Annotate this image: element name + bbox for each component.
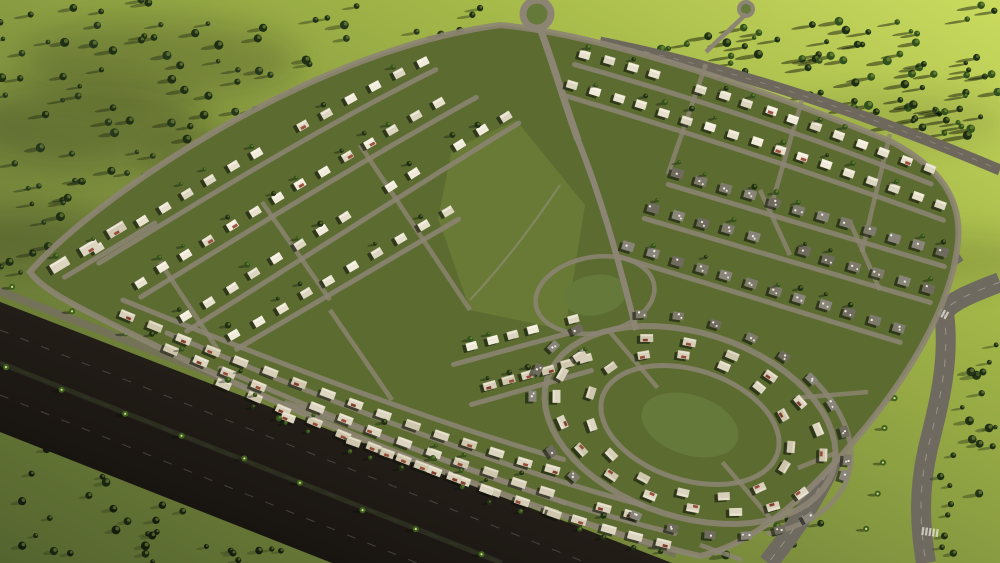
tree-highlight — [981, 391, 984, 394]
tree-highlight — [420, 215, 422, 217]
tree-highlight — [970, 126, 974, 130]
tree-highlight — [180, 62, 184, 66]
tree-highlight — [233, 550, 236, 553]
tree-highlight — [743, 25, 746, 28]
tree-highlight — [162, 502, 165, 505]
tree-highlight — [384, 419, 387, 422]
tree-highlight — [488, 332, 490, 334]
tree-highlight — [943, 240, 945, 242]
tree-highlight — [247, 262, 250, 265]
tree-highlight — [962, 406, 964, 408]
tree-highlight — [257, 35, 261, 39]
tree-highlight — [22, 498, 26, 502]
tree-highlight — [432, 456, 435, 459]
tree-highlight — [947, 513, 949, 515]
tree-highlight — [527, 365, 530, 368]
tree-highlight — [144, 34, 147, 37]
tree-highlight — [237, 79, 240, 82]
tree-highlight — [101, 9, 104, 12]
tree-highlight — [183, 244, 185, 246]
tree-highlight — [959, 106, 962, 109]
tree-highlight — [238, 558, 241, 561]
tree-highlight — [966, 73, 969, 76]
tree-highlight — [182, 509, 185, 512]
tree-highlight — [152, 154, 155, 157]
tree-highlight — [953, 550, 956, 553]
house — [816, 448, 828, 463]
palm-crown — [299, 482, 301, 484]
tree-highlight — [897, 20, 899, 22]
tree-highlight — [409, 162, 411, 164]
tree-highlight — [184, 87, 188, 91]
tree-highlight — [346, 36, 349, 39]
tree-highlight — [995, 425, 997, 427]
tree-highlight — [97, 23, 100, 26]
tree-highlight — [115, 527, 119, 531]
roof-ridge — [641, 335, 652, 337]
tree-highlight — [900, 98, 903, 101]
palm-crown — [877, 493, 879, 495]
tree-highlight — [105, 479, 109, 483]
tree-highlight — [758, 30, 761, 33]
tree-highlight — [255, 393, 257, 395]
tree-highlight — [489, 500, 491, 502]
tree-highlight — [180, 183, 182, 185]
tree-highlight — [979, 490, 983, 494]
ac-unit — [644, 314, 646, 316]
tree-highlight — [179, 308, 181, 310]
tree-highlight — [227, 215, 229, 217]
tree-highlight — [633, 58, 635, 60]
tree-highlight — [976, 55, 979, 58]
tree-highlight — [141, 37, 144, 40]
tree-highlight — [967, 17, 969, 19]
tree-highlight — [145, 551, 148, 554]
palm-crown — [71, 310, 73, 312]
tree-highlight — [776, 190, 779, 193]
tree-highlight — [277, 297, 279, 299]
tree-highlight — [868, 102, 872, 106]
tree-highlight — [156, 530, 159, 533]
ac-unit — [638, 311, 640, 313]
tree-highlight — [922, 234, 924, 236]
tree-highlight — [127, 518, 131, 522]
tree-highlight — [151, 332, 154, 335]
palm-crown — [865, 528, 867, 530]
tree-highlight — [171, 76, 175, 80]
tree-highlight — [203, 112, 207, 116]
tree-highlight — [112, 47, 116, 51]
tree-highlight — [812, 22, 815, 25]
tree-highlight — [731, 53, 734, 56]
tree-highlight — [800, 286, 803, 289]
tree-highlight — [726, 87, 728, 89]
house-roof — [704, 530, 716, 539]
tree-highlight — [364, 131, 366, 133]
tree-highlight — [53, 548, 57, 552]
tree-highlight — [181, 347, 183, 349]
tree-highlight — [991, 71, 995, 75]
tree-highlight — [988, 425, 992, 429]
tree-highlight — [509, 370, 511, 372]
tree-highlight — [827, 154, 829, 156]
tree-highlight — [67, 195, 71, 199]
tree-highlight — [818, 52, 821, 55]
tree-highlight — [477, 123, 480, 126]
tree-highlight — [3, 37, 5, 39]
tree-highlight — [296, 176, 298, 178]
tree-highlight — [992, 444, 995, 447]
tree-highlight — [160, 23, 162, 25]
palm-crown — [5, 366, 7, 368]
house-roof — [843, 454, 852, 466]
tree-highlight — [961, 124, 964, 127]
tree-highlight — [845, 27, 849, 31]
tree-highlight — [968, 68, 970, 70]
tree-highlight — [754, 36, 756, 38]
tree-highlight — [190, 124, 193, 127]
tree-highlight — [20, 76, 23, 79]
tree-highlight — [73, 5, 77, 9]
house-roof — [636, 310, 647, 318]
tree-highlight — [145, 542, 149, 546]
tree-highlight — [101, 68, 103, 70]
palm-crown — [882, 461, 884, 463]
tree-highlight — [965, 90, 968, 93]
tree-highlight — [965, 94, 967, 96]
tree-highlight — [982, 369, 985, 372]
tree-highlight — [22, 543, 26, 547]
tree-highlight — [645, 94, 647, 96]
tree-highlight — [871, 74, 874, 77]
ac-unit — [533, 392, 535, 394]
tree-highlight — [93, 41, 97, 45]
tree-highlight — [472, 12, 475, 15]
tree-highlight — [48, 40, 50, 42]
tree-highlight — [218, 42, 222, 46]
terracotta-accent — [643, 339, 648, 342]
palm-crown — [61, 389, 63, 391]
tree-highlight — [153, 35, 156, 38]
tree-highlight — [300, 282, 302, 284]
tree-highlight — [64, 39, 68, 43]
tree-highlight — [876, 109, 879, 112]
ac-unit — [680, 317, 682, 319]
house — [783, 440, 795, 455]
tree-highlight — [603, 513, 606, 516]
tree-highlight — [783, 140, 786, 143]
tree-highlight — [664, 100, 667, 103]
tree-highlight — [166, 52, 170, 56]
tree-highlight — [159, 255, 161, 257]
palm-crown — [480, 553, 482, 555]
tree-highlight — [108, 119, 111, 122]
tree-highlight — [258, 68, 262, 72]
tree-highlight — [370, 456, 372, 458]
palm-crown — [415, 528, 417, 530]
tree-highlight — [435, 444, 437, 446]
tree-highlight — [935, 107, 937, 109]
tree-highlight — [273, 191, 275, 193]
ac-unit — [742, 534, 744, 536]
tree-highlight — [487, 377, 489, 379]
tree-highlight — [320, 221, 323, 224]
tree-highlight — [206, 545, 208, 547]
tree-highlight — [923, 62, 926, 65]
tree-highlight — [705, 255, 707, 257]
tree-highlight — [393, 65, 395, 67]
tree-highlight — [933, 71, 936, 74]
tree-highlight — [911, 30, 913, 32]
tree-highlight — [327, 16, 330, 19]
palm-crown — [883, 427, 885, 429]
ac-unit — [748, 534, 750, 536]
tree-highlight — [204, 168, 206, 170]
tree-highlight — [80, 179, 83, 182]
tree-highlight — [958, 121, 960, 123]
tree-highlight — [228, 323, 231, 326]
tree-highlight — [704, 173, 706, 175]
tree-highlight — [862, 42, 865, 45]
tree-highlight — [62, 74, 65, 77]
tree-highlight — [633, 546, 636, 549]
palm-crown — [243, 457, 245, 459]
tree-highlight — [208, 22, 210, 24]
tree-highlight — [49, 516, 52, 519]
ac-unit — [845, 461, 847, 463]
tree-highlight — [71, 151, 74, 154]
tree-highlight — [807, 65, 810, 68]
tree-highlight — [280, 549, 283, 552]
tree-highlight — [585, 347, 587, 349]
tree-highlight — [305, 57, 309, 61]
tree-highlight — [486, 479, 488, 481]
tree-highlight — [917, 31, 920, 34]
tree-highlight — [70, 551, 73, 554]
tree-highlight — [30, 12, 33, 15]
tree-highlight — [258, 548, 261, 551]
tree-highlight — [375, 242, 377, 244]
tree-highlight — [521, 471, 523, 473]
palm-crown — [361, 509, 363, 511]
tree-highlight — [60, 213, 64, 217]
tree-highlight — [661, 46, 665, 50]
tree-highlight — [949, 484, 951, 486]
tree-highlight — [251, 145, 253, 147]
tree-highlight — [915, 39, 919, 43]
tree-highlight — [237, 68, 240, 71]
tree-highlight — [9, 259, 13, 263]
tree-highlight — [857, 42, 860, 45]
tree-highlight — [270, 72, 273, 75]
tree-highlight — [979, 441, 983, 445]
tree-highlight — [820, 90, 823, 93]
tree-highlight — [240, 370, 242, 372]
tree-highlight — [74, 179, 77, 182]
entrance-roundabout — [523, 0, 551, 28]
tree-highlight — [14, 161, 17, 164]
tree-highlight — [744, 44, 747, 47]
tree-highlight — [350, 450, 352, 452]
tree-highlight — [942, 545, 945, 548]
tree-highlight — [208, 93, 212, 97]
palm-crown — [893, 397, 895, 399]
tree-highlight — [953, 453, 956, 456]
tree-highlight — [152, 532, 156, 536]
tree-highlight — [922, 124, 926, 128]
tree-highlight — [715, 116, 717, 118]
tree-highlight — [480, 6, 483, 9]
tree-highlight — [679, 161, 681, 163]
tree-highlight — [758, 51, 762, 55]
tree-highlight — [186, 136, 190, 140]
tree-highlight — [904, 81, 908, 85]
tree-highlight — [826, 40, 828, 42]
tree-highlight — [830, 249, 832, 251]
tree-highlight — [137, 150, 139, 152]
tree-highlight — [965, 61, 967, 63]
tree-highlight — [820, 521, 823, 524]
tree-highlight — [969, 417, 973, 421]
tree-highlight — [972, 436, 976, 440]
tree-highlight — [344, 22, 348, 26]
tree-highlight — [32, 202, 34, 204]
tree-highlight — [80, 85, 82, 87]
tree-highlight — [78, 94, 81, 97]
house — [525, 391, 536, 404]
tree-highlight — [93, 238, 95, 240]
tree-highlight — [970, 368, 974, 372]
tree-highlight — [356, 4, 359, 7]
tree-highlight — [416, 30, 419, 33]
tree-highlight — [940, 474, 943, 477]
tree-highlight — [989, 360, 991, 362]
tree-highlight — [686, 42, 689, 45]
tree-highlight — [899, 52, 902, 55]
tree-highlight — [271, 547, 273, 549]
tree-highlight — [944, 533, 947, 536]
cloud-shadow — [20, 20, 300, 100]
tree-highlight — [113, 506, 117, 510]
tree-highlight — [603, 535, 606, 538]
ac-unit — [531, 395, 533, 397]
tree-highlight — [852, 161, 855, 164]
tree-highlight — [802, 56, 805, 59]
tree-highlight — [805, 243, 807, 245]
tree-highlight — [388, 123, 390, 125]
tree-highlight — [752, 94, 754, 96]
tree-highlight — [726, 39, 730, 43]
house — [549, 390, 560, 405]
tree-highlight — [798, 201, 800, 203]
tree-highlight — [341, 149, 343, 151]
tree-highlight — [981, 2, 984, 5]
tree-highlight — [980, 115, 982, 117]
tree-highlight — [308, 430, 310, 432]
tree-highlight — [930, 277, 932, 279]
tree-highlight — [155, 518, 158, 521]
tree-highlight — [946, 118, 949, 121]
terracotta-accent — [820, 451, 823, 456]
ac-unit — [847, 460, 849, 462]
ac-unit — [678, 313, 680, 315]
tree-highlight — [653, 244, 655, 246]
tree-highlight — [844, 125, 847, 128]
palm-crown — [180, 435, 182, 437]
tree-highlight — [887, 57, 891, 61]
tree-highlight — [88, 493, 91, 496]
roof-ridge — [730, 514, 741, 516]
tree-highlight — [262, 25, 266, 29]
tree-highlight — [235, 109, 239, 113]
tree-highlight — [111, 168, 115, 172]
tree-highlight — [854, 99, 857, 102]
tree-highlight — [830, 53, 834, 57]
tree-highlight — [114, 129, 118, 133]
tree-highlight — [470, 337, 473, 340]
roof-ridge — [553, 391, 555, 402]
tree-highlight — [38, 184, 41, 187]
tree-highlight — [129, 118, 133, 122]
tree-highlight — [21, 51, 24, 54]
tree-highlight — [285, 421, 287, 423]
tree-highlight — [708, 33, 712, 37]
tree-highlight — [745, 69, 748, 72]
tree-highlight — [43, 220, 45, 222]
tree-highlight — [171, 120, 175, 124]
north-east-roundabout — [739, 2, 753, 16]
tree-highlight — [994, 8, 997, 11]
tree-highlight — [227, 377, 230, 380]
tree-highlight — [868, 30, 871, 33]
tree-highlight — [896, 180, 898, 182]
tree-highlight — [1, 74, 5, 78]
tree-highlight — [127, 171, 130, 174]
tree-highlight — [657, 199, 659, 201]
tree-highlight — [45, 112, 48, 115]
tree-highlight — [660, 550, 662, 552]
tree-highlight — [850, 303, 853, 306]
tree-highlight — [820, 118, 823, 121]
aerial-scene — [0, 0, 1000, 563]
tree-highlight — [113, 105, 116, 108]
tree-highlight — [579, 527, 581, 529]
tree-highlight — [855, 79, 859, 83]
tree-highlight — [462, 485, 464, 487]
tree-highlight — [461, 469, 463, 471]
tree-highlight — [218, 60, 220, 62]
tree-highlight — [914, 116, 917, 119]
tree-highlight — [950, 502, 953, 505]
tree-highlight — [922, 86, 924, 88]
tree-highlight — [102, 475, 105, 478]
tree-highlight — [297, 237, 299, 239]
tree-highlight — [55, 254, 58, 257]
tree-highlight — [595, 84, 597, 86]
palm-crown — [124, 413, 126, 415]
tree-highlight — [913, 119, 915, 121]
tree-highlight — [691, 106, 694, 109]
tree-highlight — [838, 18, 842, 22]
tree-highlight — [31, 471, 34, 474]
tree-highlight — [20, 271, 22, 273]
tree-highlight — [520, 509, 522, 511]
tree-highlight — [35, 534, 37, 536]
tree-highlight — [825, 293, 827, 295]
aerial-render-viewport — [0, 0, 1000, 563]
tree-highlight — [754, 184, 757, 187]
tree-highlight — [843, 57, 847, 61]
